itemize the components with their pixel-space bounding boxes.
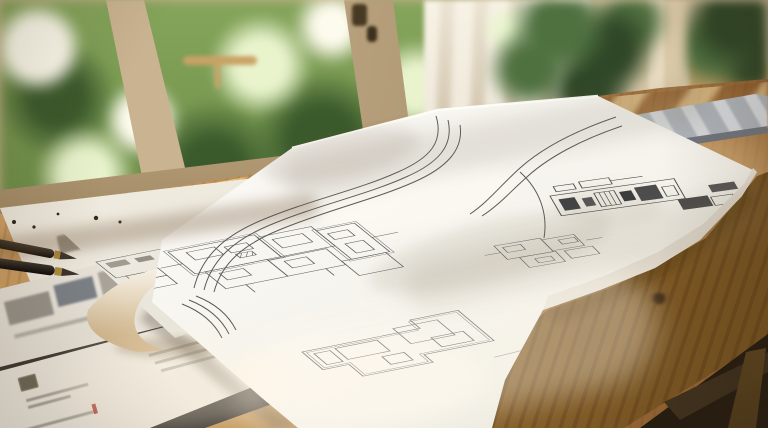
photo-sunlit-blueprint-scene — [0, 0, 768, 428]
vignette-overlay — [0, 0, 768, 428]
